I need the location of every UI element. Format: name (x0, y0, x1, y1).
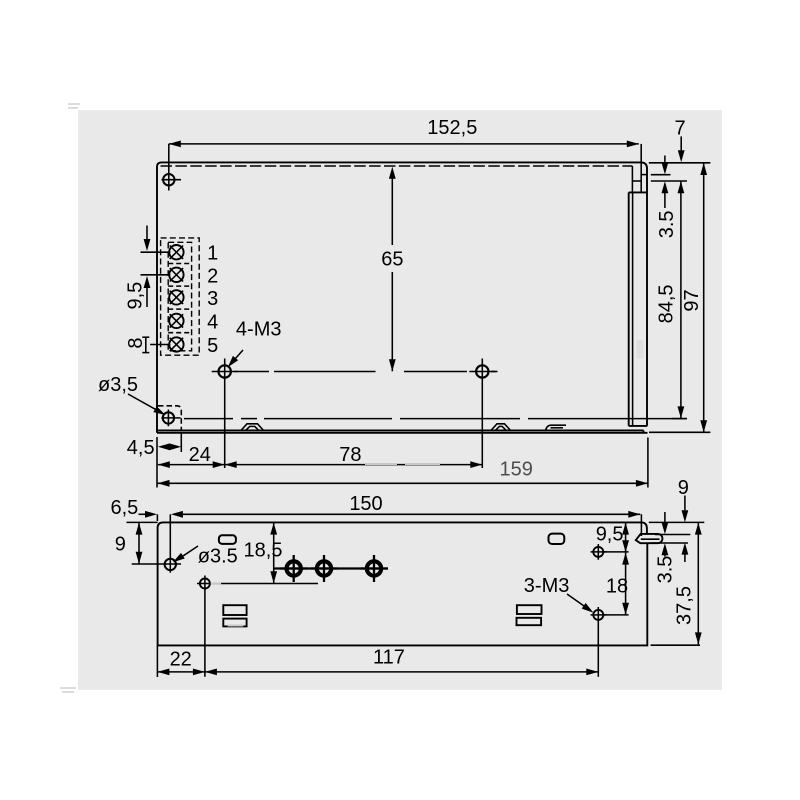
svg-text:9: 9 (678, 477, 689, 499)
svg-text:117: 117 (373, 647, 405, 669)
svg-text:3-M3: 3-M3 (524, 575, 570, 597)
svg-text:152,5: 152,5 (427, 117, 477, 139)
svg-text:150: 150 (349, 493, 382, 515)
svg-text:1: 1 (207, 243, 218, 265)
svg-text:9,5: 9,5 (125, 282, 147, 310)
svg-text:18: 18 (606, 576, 628, 598)
svg-text:4,5: 4,5 (127, 437, 155, 459)
svg-text:3.5: 3.5 (656, 210, 678, 238)
svg-text:18,5: 18,5 (244, 540, 283, 562)
svg-text:22: 22 (170, 648, 192, 670)
svg-text:9: 9 (115, 534, 126, 556)
svg-text:ø3.5: ø3.5 (198, 546, 238, 568)
svg-text:3.5: 3.5 (655, 556, 677, 584)
svg-text:7: 7 (674, 118, 685, 140)
svg-text:37,5: 37,5 (674, 586, 696, 625)
svg-text:8: 8 (125, 337, 147, 348)
svg-text:84,5: 84,5 (656, 284, 678, 323)
svg-text:24: 24 (189, 444, 211, 466)
svg-text:159: 159 (500, 459, 533, 481)
svg-text:ø3,5: ø3,5 (98, 374, 138, 396)
svg-text:2: 2 (207, 265, 218, 287)
svg-text:97: 97 (681, 289, 703, 311)
svg-text:6,5: 6,5 (110, 497, 138, 519)
svg-text:65: 65 (381, 249, 403, 271)
svg-text:3: 3 (207, 288, 218, 310)
svg-text:9,5: 9,5 (596, 523, 624, 545)
svg-text:78: 78 (339, 444, 361, 466)
svg-text:5: 5 (207, 335, 218, 357)
svg-text:4-M3: 4-M3 (236, 319, 282, 341)
svg-text:4: 4 (207, 311, 218, 333)
